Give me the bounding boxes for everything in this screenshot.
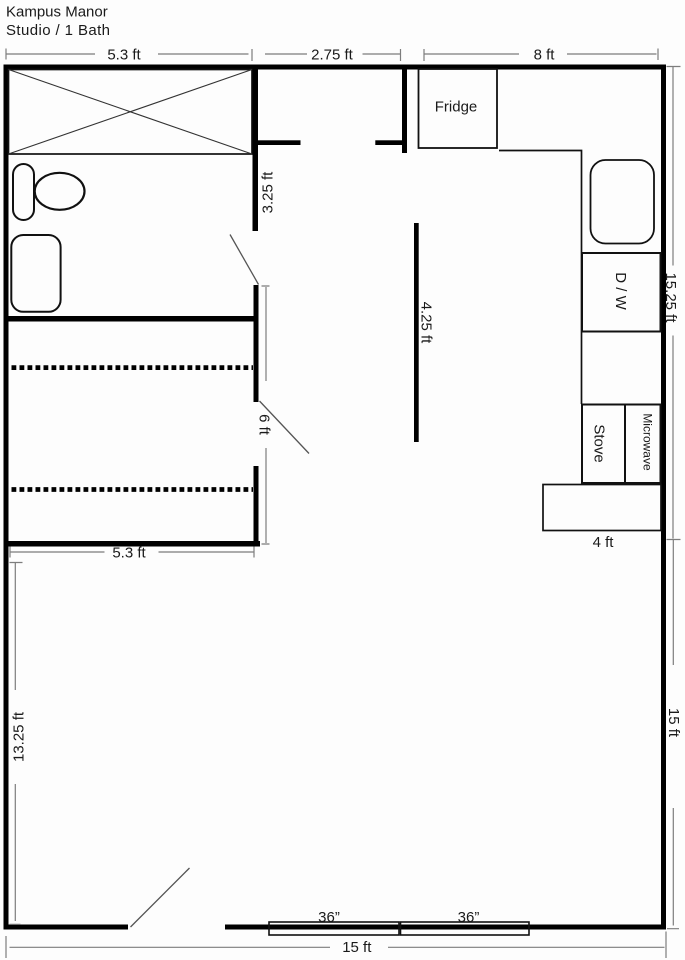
svg-text:Kampus Manor: Kampus Manor [6, 4, 108, 21]
svg-text:8 ft: 8 ft [534, 47, 556, 64]
svg-text:4.25 ft: 4.25 ft [418, 302, 435, 345]
svg-text:5.3 ft: 5.3 ft [112, 545, 146, 562]
svg-text:36”: 36” [458, 909, 480, 926]
svg-text:Studio / 1 Bath: Studio / 1 Bath [6, 22, 110, 39]
svg-text:36”: 36” [318, 909, 340, 926]
svg-text:15.25 ft: 15.25 ft [662, 272, 679, 323]
svg-text:6 ft: 6 ft [256, 414, 273, 436]
svg-text:D / W: D / W [612, 272, 629, 310]
svg-text:Fridge: Fridge [435, 99, 478, 116]
svg-text:2.75 ft: 2.75 ft [311, 47, 354, 64]
svg-text:5.3 ft: 5.3 ft [107, 47, 141, 64]
svg-text:15 ft: 15 ft [665, 708, 682, 738]
svg-text:15 ft: 15 ft [342, 939, 372, 956]
svg-text:Microwave: Microwave [640, 413, 654, 471]
svg-text:13.25 ft: 13.25 ft [11, 711, 28, 762]
svg-text:Stove: Stove [591, 424, 608, 462]
svg-text:4 ft: 4 ft [593, 534, 615, 551]
svg-text:3.25 ft: 3.25 ft [260, 171, 277, 214]
